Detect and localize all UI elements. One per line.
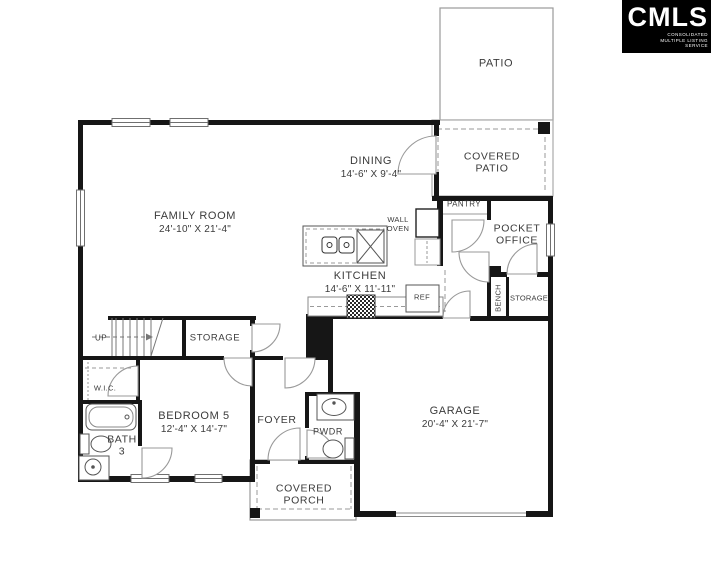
room-label-pantry: PANTRY (447, 199, 481, 208)
cmls-logo-tagline: CONSOLIDATED MULTIPLE LISTING SERVICE (652, 32, 708, 50)
floorplan-page: PATIO COVERED PATIO DINING 14'-6" X 9'-4… (0, 0, 711, 567)
cmls-logo-brand: CMLS (628, 4, 709, 31)
label-stairs-up: UP (95, 333, 107, 342)
family-room-name: FAMILY ROOM (154, 210, 236, 223)
cmls-logo: CMLS CONSOLIDATED MULTIPLE LISTING SERVI… (622, 0, 711, 53)
bedroom5-dims: 12'-4" X 14'-7" (158, 424, 229, 436)
room-label-kitchen: KITCHEN 14'-6" X 11'-11" (325, 270, 395, 296)
garage-name: GARAGE (422, 405, 488, 418)
room-label-bench: BENCH (495, 284, 504, 312)
kitchen-dims: 14'-6" X 11'-11" (325, 284, 395, 296)
garage-door (396, 513, 526, 517)
bath-name: BATH (107, 434, 137, 446)
kitchen-name: KITCHEN (325, 270, 395, 283)
family-room-dims: 24'-10" X 21'-4" (154, 224, 236, 236)
bath-number: 3 (107, 446, 137, 458)
room-label-storage-right: STORAGE (510, 295, 548, 304)
room-label-family-room: FAMILY ROOM 24'-10" X 21'-4" (154, 210, 236, 236)
label-ref: REF (414, 294, 430, 303)
bedroom5-name: BEDROOM 5 (158, 410, 229, 423)
room-label-garage: GARAGE 20'-4" X 21'-7" (422, 405, 488, 431)
room-label-pocket-office: POCKET OFFICE (489, 223, 545, 248)
room-label-storage-left: STORAGE (190, 332, 240, 343)
room-label-wic: W.I.C. (94, 385, 116, 394)
dining-name: DINING (341, 155, 401, 168)
room-label-patio: PATIO (479, 58, 513, 71)
garage-dims: 20'-4" X 21'-7" (422, 419, 488, 431)
room-label-covered-patio: COVERED PATIO (460, 151, 524, 176)
kitchen-island (303, 226, 387, 266)
room-label-foyer: FOYER (257, 414, 296, 426)
room-label-covered-porch: COVERED PORCH (268, 483, 340, 508)
room-label-bedroom5: BEDROOM 5 12'-4" X 14'-7" (158, 410, 229, 436)
room-label-pwdr: PWDR (313, 427, 343, 438)
label-wall-oven: WALL OVEN (380, 216, 416, 234)
dining-dims: 14'-6" X 9'-4" (341, 169, 401, 181)
room-label-dining: DINING 14'-6" X 9'-4" (341, 155, 401, 181)
room-label-bath: BATH 3 (107, 434, 137, 459)
